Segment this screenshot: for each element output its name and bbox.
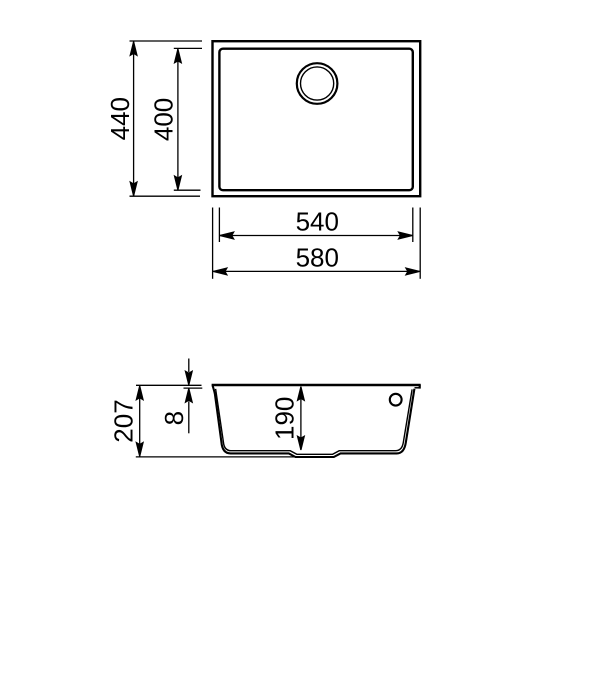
svg-text:540: 540 bbox=[296, 206, 339, 236]
svg-text:190: 190 bbox=[270, 397, 300, 440]
svg-text:8: 8 bbox=[159, 411, 189, 425]
svg-text:580: 580 bbox=[296, 243, 339, 273]
svg-text:440: 440 bbox=[105, 97, 135, 140]
svg-text:207: 207 bbox=[109, 399, 139, 442]
svg-text:400: 400 bbox=[149, 98, 179, 141]
